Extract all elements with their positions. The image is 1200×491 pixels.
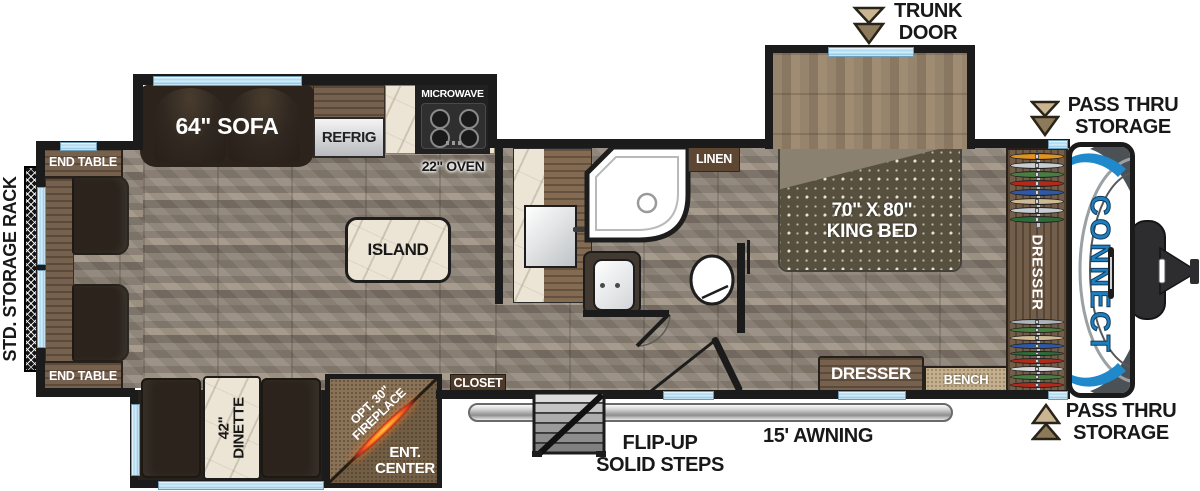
hanger-clip [1035,352,1039,356]
window-bottom-entry [663,391,714,400]
island-label: ISLAND [368,240,429,260]
rear-chair-bottom [72,284,129,362]
hanger-clip [1035,367,1039,371]
bench-label: BENCH [944,372,989,387]
bed-slideout [765,45,975,149]
vanity-sink [524,205,577,268]
hanger-clip [1035,154,1039,159]
hanger-clip [1035,163,1039,168]
refrigerator: REFRIG [313,117,385,158]
linen-closet: LINEN [688,146,740,172]
kz-logo [1108,247,1114,299]
hanger-clip [1035,181,1039,186]
window-bottom-bedroom [838,391,906,400]
burner [430,109,450,129]
rear-chair-top [72,176,129,255]
ent-center-label: ENT.CENTER [374,445,436,477]
bath-vanity [513,148,592,303]
hanger-clip [1035,208,1039,213]
bench: BENCH [924,366,1008,392]
hitch [1130,215,1200,325]
dinette-table: 42"DINETTE [203,376,261,480]
steps-label: FLIP-UPSOLID STEPS [575,432,745,476]
bed-slideout-window [828,47,914,57]
hanger-clip [1035,190,1039,195]
bedroom-door-panel [747,240,750,274]
dinette-window-left [131,404,140,476]
island: ISLAND [345,217,451,283]
pass-thru-bottom-arrow-icon [1031,403,1061,441]
pass-thru-top-label: PASS THRUSTORAGE [1060,94,1186,138]
dresser-bottom: DRESSER [818,356,924,392]
hanger-rack-bottom [1010,319,1064,390]
window-top-cap [1048,140,1068,149]
faucet-dot [615,283,620,288]
front-cap: CONNECT [1067,142,1135,398]
pass-thru-bottom-label: PASS THRUSTORAGE [1058,400,1184,444]
floorplan: STD. STORAGE RACK END TABLE END TABLE 64… [0,0,1200,491]
window-rear-top [60,142,97,151]
shower [583,143,693,245]
stove-knobs [446,141,462,145]
faucet-dot [600,283,605,288]
linen-label: LINEN [696,152,732,166]
wardrobe-column: DRESSER [1006,148,1068,393]
pass-thru-top-arrow-icon [1030,100,1060,138]
end-table-bottom-label: END TABLE [43,366,123,386]
dinette-bench-left [141,378,201,478]
wall-top-bath [488,139,770,148]
bed-label: 70" X 80"KING BED [780,200,962,242]
bed-slideout-floor [773,53,967,149]
hanger-clip [1035,199,1039,204]
microwave-label: MICROWAVE [415,88,490,100]
microwave-oven-unit: MICROWAVE [415,85,490,154]
hanger-clip [1035,172,1039,177]
window-sofa [153,76,302,86]
sofa: 64" SOFA [140,85,314,167]
dresser-side-label: DRESSER [1029,234,1046,310]
dinette-window-bottom [158,481,324,490]
fridge-cabinet [313,85,385,118]
hanger-clip [1035,383,1039,387]
hanger-clip [1035,359,1039,363]
hanger-rack-top [1010,153,1064,225]
oven-label: 22" OVEN [408,157,498,175]
burner [459,128,479,148]
wardrobe-bottom [1008,318,1066,391]
closet-label: CLOSET [454,376,503,390]
end-table-top-label: END TABLE [43,152,123,172]
awning-label: 15' AWNING [738,425,898,447]
wall-left-exterior [36,141,45,397]
hanger-clip [1035,375,1039,379]
wall-step-right [488,74,497,148]
wall-step-left [133,74,143,150]
storage-rack-label: STD. STORAGE RACK [0,149,21,389]
toilet [688,254,738,306]
dinette-label: 42"DINETTE [217,397,247,458]
cooktop [421,103,486,149]
hanger-clip [1035,217,1039,222]
burner [459,109,479,129]
brand-logo: CONNECT [1067,195,1135,355]
burner [430,128,450,148]
wall-bottom-rear [36,388,135,397]
window-left-1 [37,187,46,265]
hanger-clip [1035,336,1039,340]
hanger-clip [1035,320,1039,324]
window-bottom-cap [1048,391,1068,400]
door-swings [580,300,780,400]
ent-center-cabinet: OPT. 30"FIREPLACE ENT.CENTER [325,374,442,488]
window-left-2 [37,270,46,348]
dinette-bench-right [261,378,321,478]
rear-console [45,178,74,362]
trunk-door-arrow-icon [852,6,886,46]
dresser-side: DRESSER [1008,226,1066,318]
hanger-clip [1035,344,1039,348]
dresser-bottom-label: DRESSER [831,364,911,384]
sofa-label: 64" SOFA [140,113,314,139]
wardrobe-top [1008,152,1066,226]
trunk-door-label: TRUNKDOOR [888,0,968,44]
hanger-clip [1035,328,1039,332]
refrig-label: REFRIG [315,127,383,147]
